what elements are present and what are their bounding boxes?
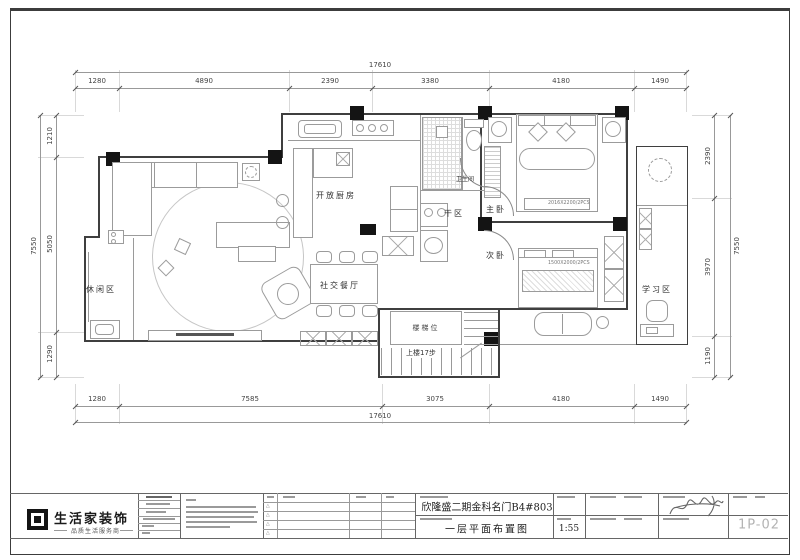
coffee-table-2 [238,246,276,262]
dim-bottom-total: 17610 [369,412,391,420]
drawing-sheet: 17610 1280 4890 2390 3380 4180 1490 1280… [0,0,800,560]
info-table-line [138,516,180,517]
extension-line [372,70,373,112]
drawing-title: 一层平面布置图 [445,521,529,536]
revision-line [381,493,382,538]
info-table-line [138,500,180,501]
revision-line [263,520,415,521]
revision-marker-icon: △ [266,512,270,518]
wall [133,238,134,340]
titleblock-line [10,538,788,539]
room-label-dining: 社交餐厅 [320,280,360,291]
fridge-divider [390,209,418,210]
dim-bottom-seg: 7585 [241,395,259,403]
burner-icon [356,124,364,132]
sideboard [352,331,378,346]
dim-line-top-segments [75,88,686,89]
vanity-basin [424,237,443,254]
revision-marker-icon: △ [266,503,270,509]
plant-icon [648,158,672,182]
desk-chair [646,300,668,322]
dim-line-right-segments [714,115,715,377]
blanket [522,270,594,292]
extension-line [38,377,84,378]
designer-signature [666,492,726,522]
revision-header-bar [356,496,366,498]
extension-line [38,157,84,158]
dim-line-right-total [730,115,731,377]
wall [480,308,628,310]
dim-top-total: 17610 [369,61,391,69]
field-label-bar [590,518,616,520]
wardrobe [604,236,624,269]
room-label-stairs: 楼梯位 [413,323,440,333]
dim-right-seg: 1190 [704,347,712,365]
room-label-second: 次卧 [486,250,506,261]
loveseat [534,312,592,336]
dim-bottom-seg: 3075 [426,395,444,403]
dim-left-seg: 1290 [46,345,54,363]
dim-top-seg: 4890 [195,77,213,85]
dim-top-seg: 1280 [88,77,106,85]
armchair-cushion [277,283,299,305]
hood-icon [336,152,350,166]
bar-stool [276,194,289,207]
project-name: 欣隆盛二期金科名门B4#803 [421,499,552,514]
notes-text-bar [186,516,254,518]
cushion-seam [544,116,545,125]
shelf [639,229,652,250]
wall [84,236,100,238]
side-table [596,316,609,329]
dim-right-seg: 2390 [704,147,712,165]
tagline-dash [120,530,133,531]
field-label-bar [733,496,747,498]
field-label-bar [624,496,642,498]
room-label-kitchen: 开放厨房 [316,190,356,201]
counter-edge [288,140,420,141]
room-label-master: 主卧 [486,204,506,215]
dim-line-left-segments [56,115,57,377]
info-text-bar [146,511,166,513]
info-text-bar [142,525,154,527]
dim-top-seg: 4180 [552,77,570,85]
column [360,224,376,235]
tv [176,333,234,336]
wall [500,344,636,345]
dim-line-top-total [75,72,686,73]
column [268,150,282,164]
dim-right-total: 7550 [733,237,741,255]
revision-line [263,529,415,530]
shelf [639,208,652,229]
notes-text-bar [186,511,258,513]
extension-line [119,70,120,112]
revision-line [277,493,278,538]
wall [626,113,628,310]
bed-size-note: 1500X2000/2PCS [548,260,590,266]
wall [637,205,687,206]
info-text-bar [146,503,170,505]
revision-line [349,493,350,538]
info-text-bar [146,496,172,498]
dining-chair [316,251,332,263]
revision-line [263,511,415,512]
stairs-note: 上楼17步 [404,348,438,358]
info-text-bar [142,532,150,534]
toilet-tank [464,119,484,128]
plant-icon [245,166,257,178]
blanket-roll [519,148,595,170]
burner-icon [368,124,376,132]
sideboard [300,331,326,346]
dim-left-total: 7550 [30,237,38,255]
wall [636,146,637,345]
bed-size-note: 2016X2200/2PCS [548,200,590,206]
dining-chair [316,305,332,317]
column [613,217,627,231]
dim-top-seg: 2390 [321,77,339,85]
revision-marker-icon: △ [266,530,270,536]
sheet-number: 1P-02 [738,518,780,533]
column [478,217,492,231]
headboard-cushions [518,115,596,126]
dim-bottom-seg: 1280 [88,395,106,403]
info-table-line [138,508,180,509]
stair-treads [381,348,498,375]
wall [636,146,687,147]
wall [98,156,100,238]
field-label-bar [755,496,765,498]
dim-left-seg: 1210 [46,127,54,145]
sink-bowl [304,124,336,134]
washer-icon [424,208,433,217]
column [350,106,364,120]
revision-marker-icon: △ [266,521,270,527]
extension-line [289,70,290,112]
room-label-dry-zone: 干区 [444,208,464,219]
room-label-study: 学习区 [642,284,672,295]
titleblock-line [263,493,264,538]
extension-line [38,115,84,116]
wall [420,190,490,191]
basin-bowl [95,324,114,335]
desk-item [646,327,658,334]
info-text-bar [143,518,175,520]
notes-text-bar [186,499,196,501]
wall [636,344,688,345]
notes-text-bar [186,521,257,523]
revision-line [263,502,415,503]
sink-knob [111,239,116,244]
pillow [552,250,574,258]
stair-treads [464,312,498,346]
cushion-seam [570,116,571,125]
revision-header-bar [386,496,394,498]
wardrobe [604,269,624,302]
oven [382,236,414,256]
dining-chair [339,305,355,317]
room-label-bathroom: 卫生间 [456,174,474,183]
revision-header-bar [267,496,274,498]
notes-text-bar [186,526,230,528]
logo-text: 生活家装饰 [54,508,129,527]
wall [378,308,380,378]
sofa-seam [154,163,155,187]
revision-header-bar [283,496,295,498]
lamp-icon [605,121,621,137]
sofa-chaise [112,162,152,236]
bar-stool [276,216,289,229]
dim-line-left-total [40,115,41,377]
pillow [524,250,546,258]
notes-text-bar [186,506,256,508]
room-label-leisure: 休闲区 [86,284,116,295]
dim-left-seg: 5050 [46,235,54,253]
dim-bottom-seg: 4180 [552,395,570,403]
shower-head [436,126,448,138]
tagline-dash [54,530,67,531]
field-label-bar [624,518,642,520]
burner-icon [380,124,388,132]
wall [480,221,628,223]
dim-line-bottom-total [75,422,686,423]
titleblock-line [180,493,181,538]
logo-tagline: 品质生活服务商 [71,526,120,535]
info-table-line [138,523,180,524]
extension-line [686,70,687,112]
dim-top-seg: 3380 [421,77,439,85]
field-label-bar [557,496,575,498]
dining-chair [362,251,378,263]
extension-line [634,70,635,112]
lamp-icon [491,121,507,137]
kitchen-counter [293,148,313,238]
sink-knob [111,232,116,237]
titleblock-line [415,515,788,516]
field-label-bar [590,496,616,498]
dim-top-seg: 1490 [651,77,669,85]
extension-line [38,332,84,333]
sofa-seam [196,163,197,187]
sideboard [326,331,352,346]
logo-inner-square [31,513,44,526]
info-table-line [138,530,180,531]
dim-bottom-seg: 1490 [651,395,669,403]
wall [98,156,283,158]
wall [378,376,500,378]
extension-line [75,70,76,112]
dim-right-seg: 3970 [704,258,712,276]
dining-chair [339,251,355,263]
sheet-border [10,8,790,555]
scale-value: 1:55 [559,524,579,534]
dining-chair [362,305,378,317]
wall [687,146,688,345]
loveseat-seam [562,314,563,334]
field-label-bar [557,518,571,520]
